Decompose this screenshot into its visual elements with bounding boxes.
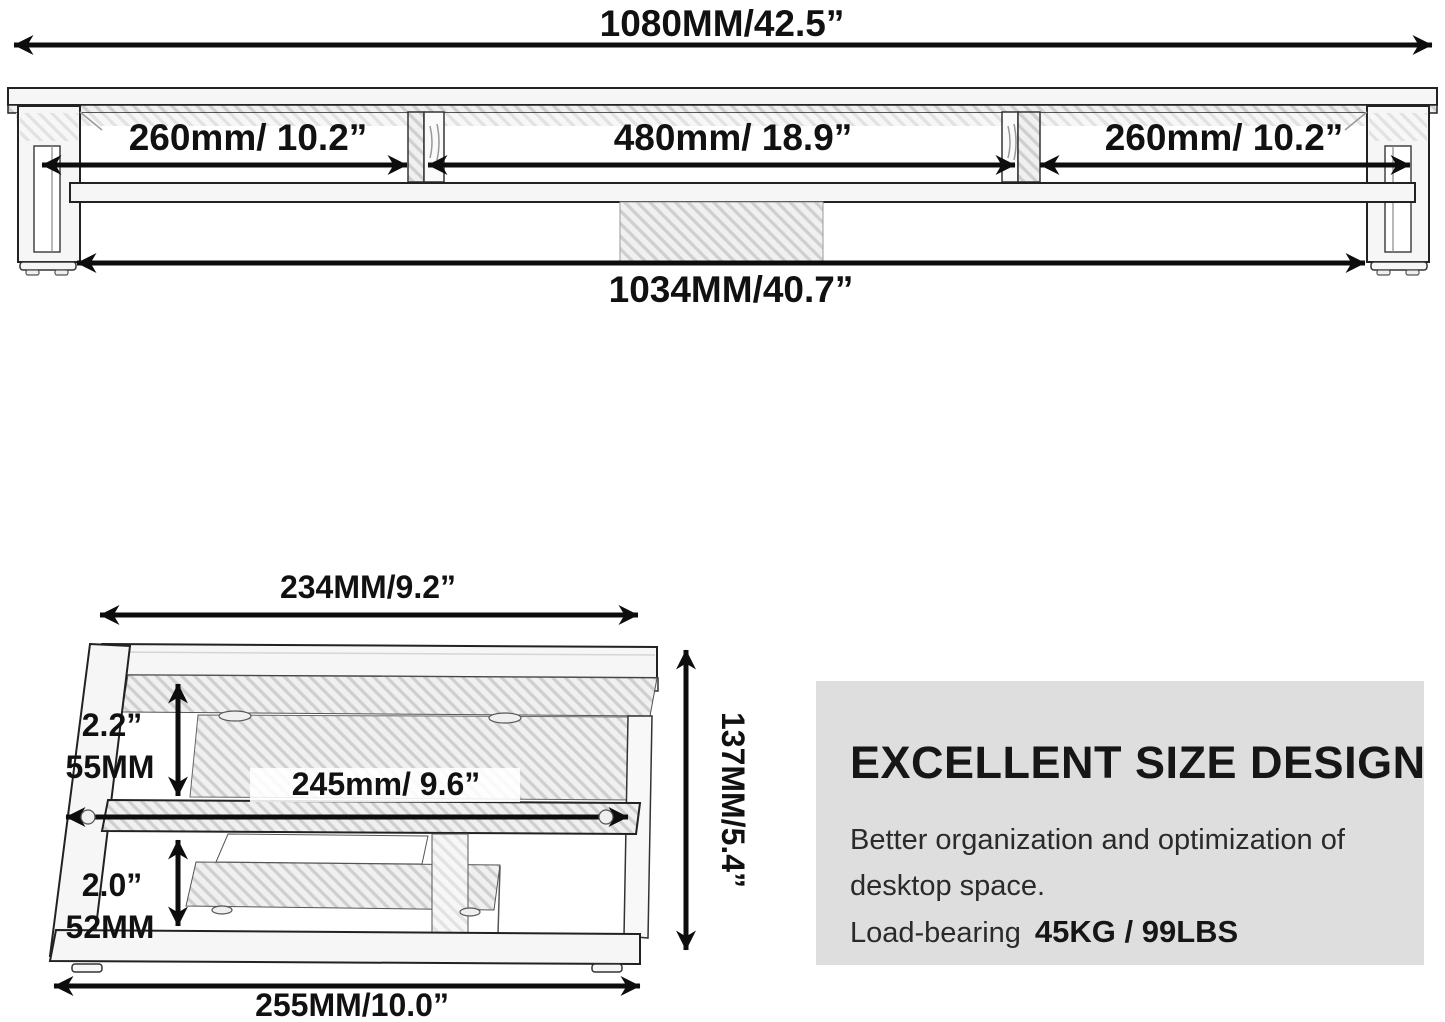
- side-view-diagram: 234MM/9.2” 2.2” 55MM: [50, 569, 751, 1022]
- side-overall-height-label: 137MM/5.4”: [715, 712, 751, 888]
- side-shelf-depth-label: 245mm/ 9.6”: [292, 766, 481, 802]
- side-pad-left: [219, 711, 251, 721]
- front-divider-right: [1002, 112, 1040, 182]
- info-panel-description-line1: Better organization and optimization of: [850, 817, 1424, 863]
- front-divider-left: [408, 112, 444, 182]
- front-top-board-edge: [8, 105, 1437, 113]
- side-rail-foot-right: [460, 908, 480, 916]
- side-upper-clearance-mm-label: 55MM: [66, 749, 155, 785]
- side-board-underside: [122, 675, 657, 716]
- load-bearing-label: Load-bearing: [850, 917, 1021, 949]
- side-lower-opening: [216, 834, 428, 864]
- front-total-width-label: 1080MM/42.5”: [600, 3, 845, 44]
- side-shelf-screw-left: [81, 810, 95, 824]
- info-panel-body: Better organization and optimization of …: [850, 817, 1424, 956]
- side-upper-clearance-inch-label: 2.2”: [82, 707, 142, 743]
- side-support-post: [432, 834, 468, 936]
- front-center-support: [620, 202, 823, 262]
- side-shelf-screw-right: [599, 810, 613, 824]
- front-top-board: [8, 88, 1437, 105]
- side-rail-foot-left: [212, 906, 232, 914]
- front-lower-rail: [70, 183, 1415, 202]
- dimension-diagram-stage: 1080MM/42.5”: [0, 0, 1445, 1022]
- side-base-depth-label: 255MM/10.0”: [255, 987, 449, 1022]
- side-pad-right: [489, 713, 521, 723]
- side-top-width-label: 234MM/9.2”: [280, 569, 456, 605]
- front-left-section-label: 260mm/ 10.2”: [129, 117, 368, 158]
- side-foot-right: [592, 964, 622, 972]
- front-middle-section-label: 480mm/ 18.9”: [614, 117, 853, 158]
- front-right-section-label: 260mm/ 10.2”: [1105, 117, 1344, 158]
- side-lower-clearance-mm-label: 52MM: [66, 909, 155, 945]
- info-panel-title: EXCELLENT SIZE DESIGN: [850, 737, 1424, 789]
- load-bearing-value: 45KG / 99LBS: [1035, 914, 1238, 949]
- info-panel-load-line: Load-bearing45KG / 99LBS: [850, 909, 1424, 956]
- front-view-diagram: 1080MM/42.5”: [8, 3, 1437, 310]
- side-top-board: [90, 644, 657, 678]
- side-lower-clearance-inch-label: 2.0”: [82, 867, 142, 903]
- side-foot-left: [72, 964, 102, 972]
- info-panel-description-line2: desktop space.: [850, 863, 1424, 909]
- front-base-width-label: 1034MM/40.7”: [609, 269, 854, 310]
- info-panel: EXCELLENT SIZE DESIGN Better organizatio…: [816, 681, 1424, 965]
